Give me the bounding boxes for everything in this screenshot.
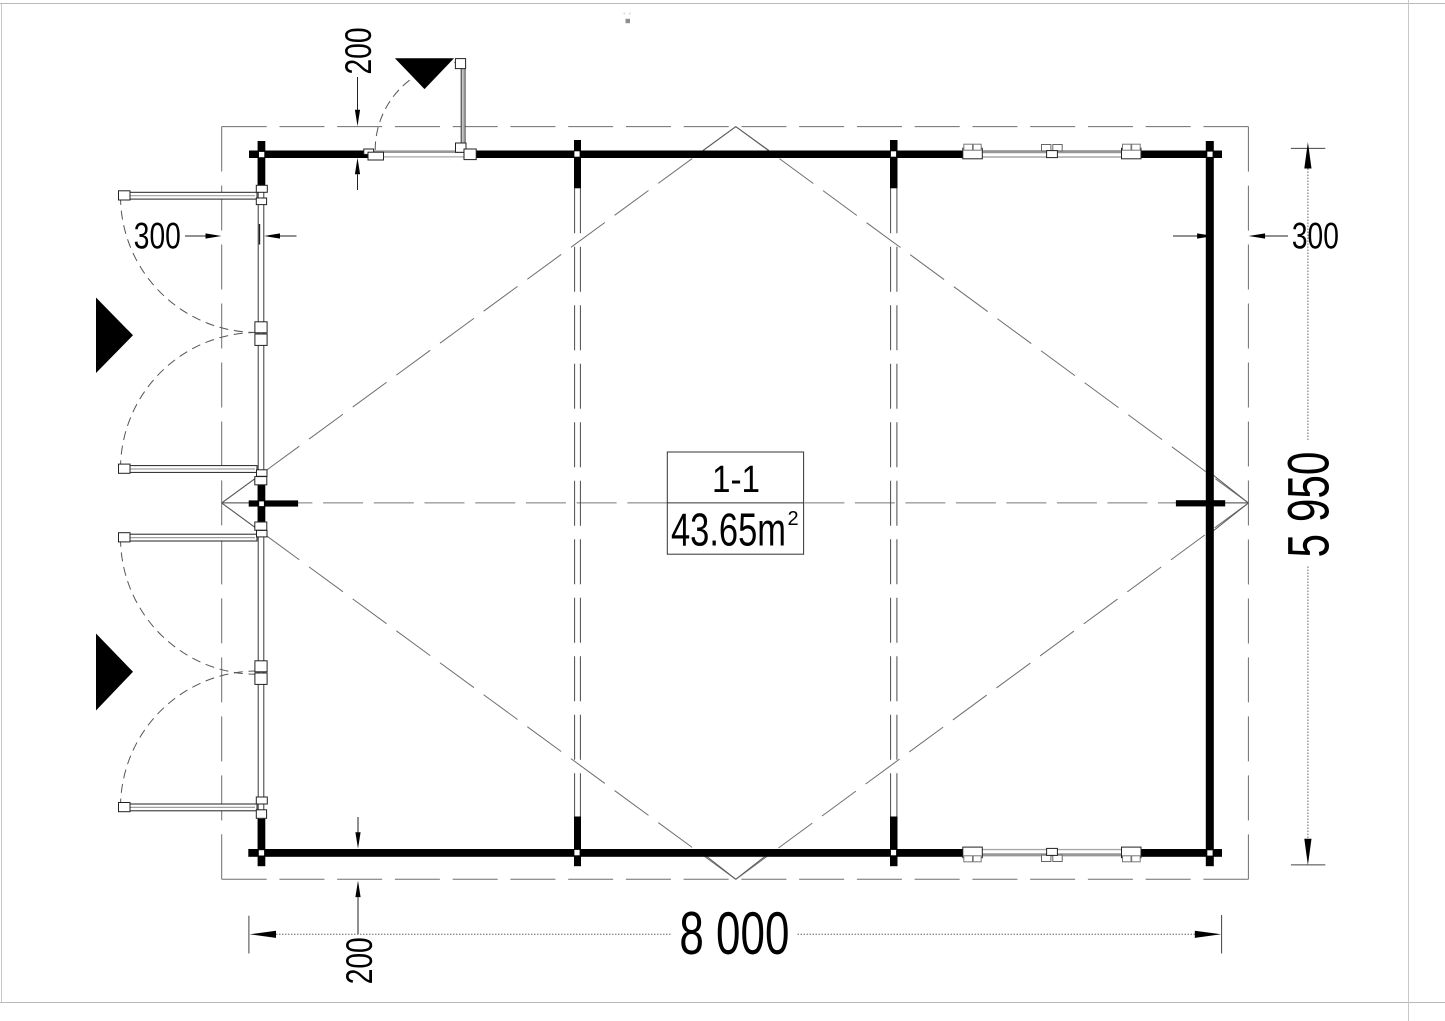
svg-text:300: 300 [134,215,181,256]
svg-text:300: 300 [1292,215,1339,256]
svg-text:2: 2 [788,508,799,530]
svg-text:1-1: 1-1 [712,459,760,501]
svg-text:200: 200 [338,28,379,75]
svg-text:200: 200 [339,937,380,984]
svg-text:5 950: 5 950 [1276,452,1341,558]
svg-text:43.65m: 43.65m [671,503,786,555]
svg-text:8 000: 8 000 [679,900,789,967]
